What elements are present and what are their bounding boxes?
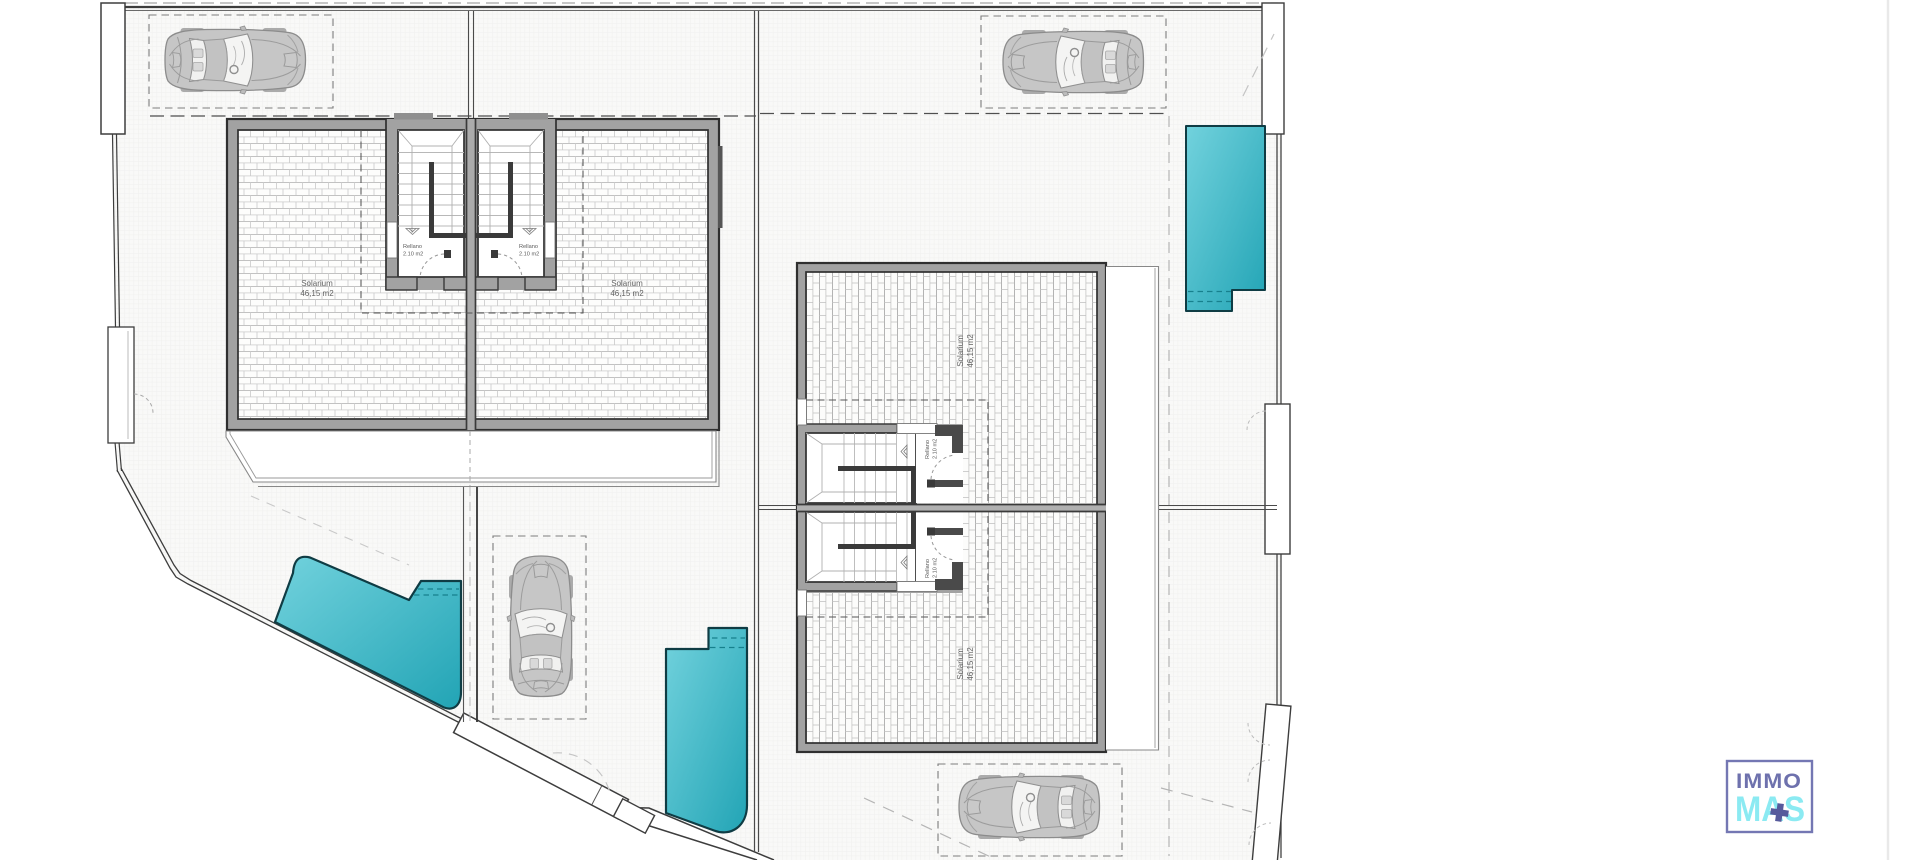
svg-text:Rellano: Rellano — [925, 559, 931, 578]
svg-text:Solarium: Solarium — [956, 335, 965, 367]
svg-text:46,15 m2: 46,15 m2 — [610, 289, 644, 298]
svg-text:Solarium: Solarium — [301, 279, 333, 288]
svg-text:2.10 m2: 2.10 m2 — [519, 252, 539, 258]
svg-text:MAS: MAS — [1735, 790, 1805, 829]
svg-text:Rellano: Rellano — [519, 244, 538, 250]
svg-text:Rellano: Rellano — [925, 440, 931, 459]
svg-text:Rellano: Rellano — [403, 244, 422, 250]
svg-text:Solarium: Solarium — [956, 648, 965, 680]
svg-text:46,15 m2: 46,15 m2 — [300, 289, 334, 298]
svg-text:46,15 m2: 46,15 m2 — [966, 334, 975, 368]
svg-text:46,15 m2: 46,15 m2 — [966, 647, 975, 681]
svg-text:2.10 m2: 2.10 m2 — [933, 439, 939, 459]
svg-text:2.10 m2: 2.10 m2 — [403, 252, 423, 258]
svg-text:Solarium: Solarium — [611, 279, 643, 288]
svg-text:2.10 m2: 2.10 m2 — [933, 558, 939, 578]
